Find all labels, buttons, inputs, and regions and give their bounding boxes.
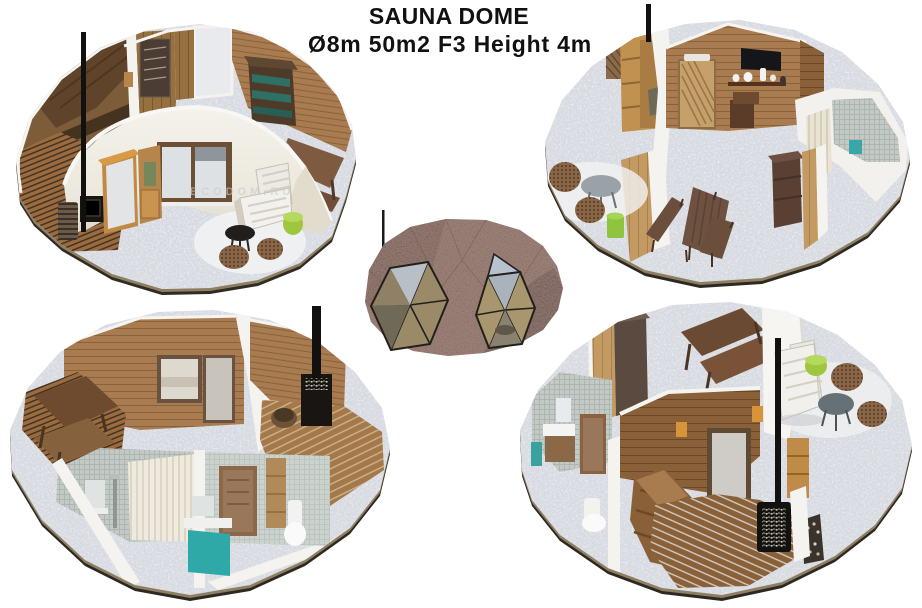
svg-text:Ø8m 50m2 F3 Height 4m: Ø8m 50m2 F3 Height 4m [308, 31, 592, 57]
svg-text:ECODOM.RU: ECODOM.RU [190, 186, 294, 198]
svg-text:SAUNA DOME: SAUNA DOME [369, 3, 529, 29]
